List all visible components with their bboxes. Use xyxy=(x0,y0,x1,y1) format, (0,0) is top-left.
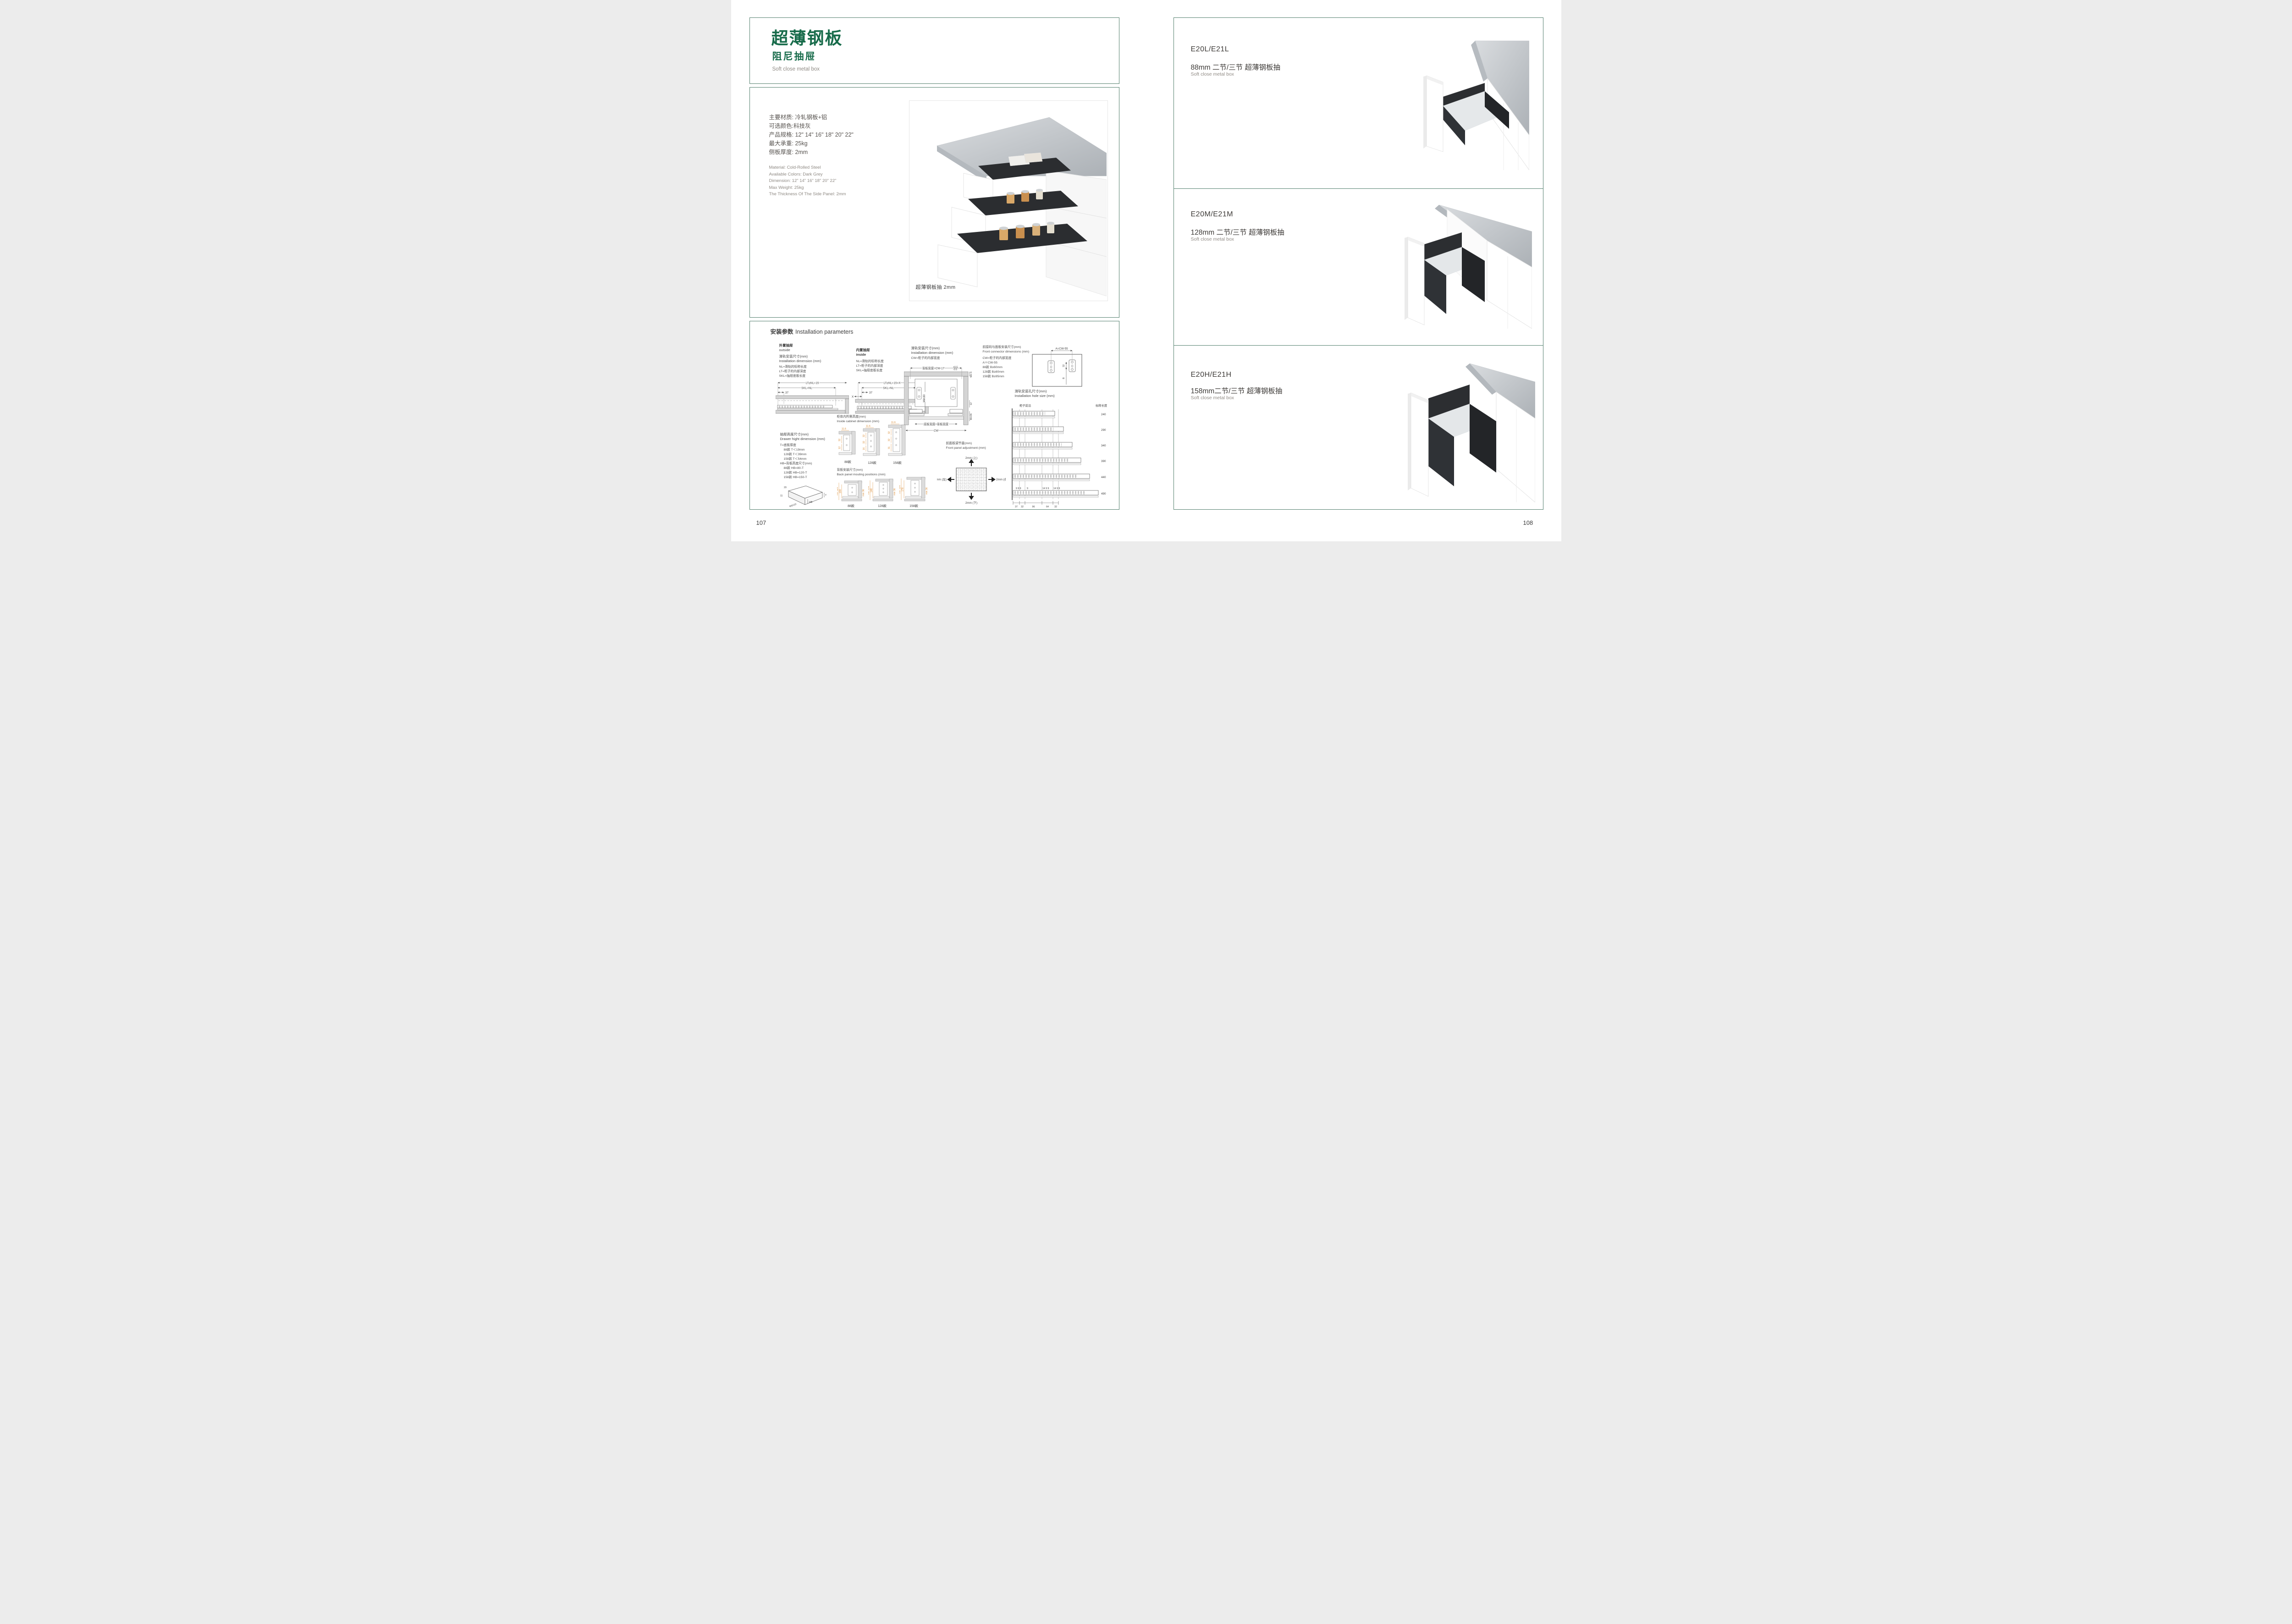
svg-text:32: 32 xyxy=(838,439,841,441)
spec-en-line: Dimension: 12" 14" 16" 18" 20" 22" xyxy=(769,178,846,185)
svg-text:SKL=NL: SKL=NL xyxy=(801,386,812,390)
svg-text:LT≥NL+15: LT≥NL+15 xyxy=(805,381,819,385)
install-header-en: Installation parameters xyxy=(795,329,853,335)
outside-diagram: LT≥NL+15 SKL=NL 37 xyxy=(776,380,849,416)
cabinet-height-158: 11.6 32 32 31 xyxy=(887,420,909,460)
svg-text:440: 440 xyxy=(1101,476,1106,479)
rail-290: 290 xyxy=(1013,427,1106,434)
product-section-128: E20M/E21M 128mm 二节/三节 超薄钢板抽 Soft close m… xyxy=(1174,188,1544,345)
product-desc-en: Soft close metal box xyxy=(1191,237,1234,242)
svg-text:LT≥NL+15+X: LT≥NL+15+X xyxy=(883,381,901,385)
spec-cn-line: 最大承重: 25kg xyxy=(769,139,854,148)
svg-text:37: 37 xyxy=(1015,506,1018,508)
svg-text:12: 12 xyxy=(838,446,841,449)
svg-text:min 36: min 36 xyxy=(926,487,928,495)
photo-caption: 超薄钢板抽 2mm xyxy=(916,283,956,291)
svg-text:11: 11 xyxy=(780,495,782,497)
product-photo: 超薄钢板抽 2mm xyxy=(909,100,1108,301)
svg-text:Min36: Min36 xyxy=(970,413,973,420)
svg-text:11.6: 11.6 xyxy=(842,428,846,430)
svg-text:9 9 9: 9 9 9 xyxy=(1016,487,1021,490)
svg-text:240: 240 xyxy=(1101,413,1106,416)
cabinet-height-158-label: 158款 xyxy=(887,461,909,465)
svg-text:背板宽度=CW-17: 背板宽度=CW-17 xyxy=(922,366,944,370)
cabinet-height-128-label: 128款 xyxy=(862,461,883,465)
page-title: 超薄钢板 xyxy=(771,24,843,49)
product-section-88: E20L/E21L 88mm 二节/三节 超薄钢板抽 Soft close me… xyxy=(1174,18,1544,188)
drawer-height-sketch: 20 11 Φ6X10 HB T xyxy=(777,484,828,508)
bottom-dims: 37 32 96 64 32 xyxy=(1013,501,1058,508)
product-section-158: E20H/E21H 158mm二节/三节 超薄钢板抽 Soft close me… xyxy=(1174,345,1544,510)
svg-text:Min 6: Min 6 xyxy=(970,372,973,378)
product-model: E20L/E21L xyxy=(1191,45,1229,54)
left-content-box: 主要材质: 冷轧钢板+铝 可选颜色:科技灰 产品规格: 12" 14" 16" … xyxy=(749,87,1119,318)
product-model: E20H/E21H xyxy=(1191,371,1232,379)
back-panel-128: min 154 148 min 36 xyxy=(868,478,897,503)
svg-text:490: 490 xyxy=(1101,492,1106,495)
product-size: 128mm 二节/三节 超薄钢板抽 xyxy=(1191,227,1284,237)
cw-block: 滑轨安装尺寸(mm) Installation dimension (mm) C… xyxy=(911,346,980,361)
svg-text:11.6: 11.6 xyxy=(866,425,871,428)
back-panel-title-cn: 背板安装尺寸(mm) xyxy=(837,468,942,473)
rail-340: 340 xyxy=(1013,442,1106,449)
specs-cn-block: 主要材质: 冷轧钢板+铝 可选颜色:科技灰 产品规格: 12" 14" 16" … xyxy=(769,113,854,157)
back-panel-158: min 184 178 min 36 xyxy=(899,476,929,503)
adjust-title-en: Front panel adjustment (mm) xyxy=(946,446,1024,451)
product-render-128 xyxy=(1370,205,1532,329)
svg-text:X: X xyxy=(852,396,854,399)
cw-title-en: Installation dimension (mm) xyxy=(911,351,980,355)
svg-text:32: 32 xyxy=(863,441,865,444)
svg-text:2mm (右): 2mm (右) xyxy=(996,477,1006,481)
page-subtitle-en: Soft close metal box xyxy=(772,66,820,72)
svg-text:31: 31 xyxy=(888,446,891,449)
inside-label-en: inside xyxy=(856,352,916,357)
product-size: 158mm二节/三节 超薄钢板抽 xyxy=(1191,385,1283,396)
outside-dim-title-cn: 滑轨安装尺寸(mm) xyxy=(779,354,848,359)
right-products-box: E20L/E21L 88mm 二节/三节 超薄钢板抽 Soft close me… xyxy=(1174,17,1543,510)
adjust-diagram: 2mm (上) 2mm (下) 2mm (左) 2mm (右) xyxy=(937,454,1006,506)
outside-label-cn: 外置抽屉 xyxy=(779,343,848,348)
adjust-title-cn: 前面板调节量(mm) xyxy=(946,441,1024,446)
svg-text:min 184: min 184 xyxy=(899,485,901,494)
product-desc-en: Soft close metal box xyxy=(1191,72,1234,77)
hole-title-en: Installation hole size (mm) xyxy=(1015,394,1116,398)
svg-text:178: 178 xyxy=(901,488,904,492)
svg-text:-0.5: -0.5 xyxy=(953,369,957,371)
outside-dim-title-en: Installation dimension (mm) xyxy=(779,359,848,363)
svg-text:B: B xyxy=(1063,377,1065,379)
svg-text:min 154: min 154 xyxy=(868,486,870,495)
svg-text:柜子前沿: 柜子前沿 xyxy=(1019,403,1031,407)
svg-text:32: 32 xyxy=(888,431,891,434)
svg-text:32: 32 xyxy=(1021,506,1024,508)
cabinet-height-88-label: 88款 xyxy=(838,460,858,464)
cabinet-height-title-en: Inside cabinet dimension (mm) xyxy=(837,419,933,424)
back-panel-158-label: 158款 xyxy=(899,504,929,508)
cw-title-cn: 滑轨安装尺寸(mm) xyxy=(911,346,980,351)
spec-cn-line: 主要材质: 冷轧钢板+铝 xyxy=(769,113,854,122)
spec-cn-line: 可选颜色:科技灰 xyxy=(769,122,854,131)
svg-text:20: 20 xyxy=(784,486,787,489)
svg-text:37: 37 xyxy=(785,391,789,394)
hole-title-block: 滑轨安装孔尺寸(mm) Installation hole size (mm) xyxy=(1015,389,1116,398)
install-header-cn: 安装参数 xyxy=(771,329,793,335)
outside-legend-nl: NL=滑轨的标称长度 xyxy=(779,365,848,369)
svg-text:Φ6X10: Φ6X10 xyxy=(789,503,797,508)
connector-diagram: A=CW-55 32 B xyxy=(1030,347,1085,389)
svg-text:A=CW-55: A=CW-55 xyxy=(1055,347,1068,351)
product-model: E20M/E21M xyxy=(1191,210,1234,219)
spec-en-line: The Thickness Of The Side Panel: 2mm xyxy=(769,191,846,198)
svg-text:HB: HB xyxy=(809,501,813,504)
install-header: 安装参数 Installation parameters xyxy=(771,327,854,336)
page-number-right: 108 xyxy=(1523,519,1533,526)
rail-240: 240 xyxy=(1013,411,1106,418)
svg-text:2mm (下): 2mm (下) xyxy=(965,501,977,505)
product-desc-en: Soft close metal box xyxy=(1191,395,1234,401)
svg-text:min 36: min 36 xyxy=(862,489,865,496)
svg-text:Min30: Min30 xyxy=(923,394,926,402)
svg-text:min 36: min 36 xyxy=(893,488,896,495)
kitchen-render-illustration xyxy=(909,101,1107,300)
page-subtitle: 阻尼抽屉 xyxy=(772,49,816,63)
outside-legend-lt: LT=柜子的内部深度 xyxy=(779,369,848,374)
spec-en-line: Max Weight: 25kg xyxy=(769,185,846,192)
cabinet-height-title-cn: 柜体内所需高度(mm) xyxy=(837,415,933,419)
back-panel-88-label: 88款 xyxy=(837,504,865,508)
spec-en-line: Available Colors: Dark Grey xyxy=(769,171,846,178)
svg-text:CW: CW xyxy=(933,429,938,432)
page-number-left: 107 xyxy=(756,519,766,526)
svg-text:108: 108 xyxy=(839,490,842,494)
cabinet-height-128: 11.6 32 32 16 xyxy=(862,424,883,460)
svg-text:64: 64 xyxy=(1046,506,1049,508)
svg-text:37: 37 xyxy=(869,391,873,394)
svg-text:14 9 9: 14 9 9 xyxy=(1053,487,1060,490)
back-panel-title: 背板安装尺寸(mm) Back panel mouting positions … xyxy=(837,468,942,477)
svg-text:12: 12 xyxy=(970,402,973,405)
cabinet-height-title: 柜体内所需高度(mm) Inside cabinet dimension (mm… xyxy=(837,415,933,424)
svg-text:290: 290 xyxy=(1101,429,1106,432)
left-title-box: 超薄钢板 阻尼抽屉 Soft close metal box xyxy=(749,17,1119,84)
rail-490: 9 9 9 9 14 9 9 14 9 9 490 xyxy=(1013,487,1106,497)
svg-text:32: 32 xyxy=(1063,364,1065,367)
cabinet-height-88: 11.6 32 12 xyxy=(838,427,858,459)
svg-text:标称长度: 标称长度 xyxy=(1096,403,1107,407)
inside-label-cn: 内置抽屉 xyxy=(856,348,916,352)
svg-text:32: 32 xyxy=(888,439,891,441)
back-panel-88: min 114 108 min 36 xyxy=(837,480,865,503)
spec-cn-line: 产品规格: 12" 14" 16" 18" 20" 22" xyxy=(769,131,854,139)
adjust-title: 前面板调节量(mm) Front panel adjustment (mm) xyxy=(946,441,1024,451)
svg-text:16: 16 xyxy=(863,447,865,450)
outside-legend-skl: SKL=抽屉底板长度 xyxy=(779,374,848,379)
outside-block: 外置抽屉 outside 滑轨安装尺寸(mm) Installation dim… xyxy=(779,343,848,379)
svg-text:390: 390 xyxy=(1101,460,1106,463)
specs-en-block: Material: Cold-Rolled Steel Available Co… xyxy=(769,165,846,198)
svg-text:11.6: 11.6 xyxy=(891,421,896,424)
svg-text:32: 32 xyxy=(863,435,865,437)
svg-text:340: 340 xyxy=(1101,444,1106,447)
svg-text:14 9 9: 14 9 9 xyxy=(1042,487,1049,490)
svg-text:T: T xyxy=(825,494,827,497)
svg-text:32: 32 xyxy=(1054,506,1057,508)
spec-cn-line: 侧板厚度: 2mm xyxy=(769,148,854,157)
rail-440: 440 xyxy=(1013,474,1106,481)
rail-390: 390 xyxy=(1013,458,1106,465)
hole-title-cn: 滑轨安装孔尺寸(mm) xyxy=(1015,389,1116,394)
svg-text:148: 148 xyxy=(870,489,873,493)
outside-label-en: outside xyxy=(779,348,848,352)
product-render-88 xyxy=(1373,39,1529,170)
back-panel-128-label: 128款 xyxy=(868,504,897,508)
product-render-158 xyxy=(1373,363,1535,502)
inside-legend-nl: NL=滑轨的标称长度 xyxy=(856,359,916,364)
install-params-box: 安装参数 Installation parameters 外置抽屉 outsid… xyxy=(749,321,1119,510)
svg-text:96: 96 xyxy=(1032,506,1035,508)
cw-legend: CW=柜子的内部宽度 xyxy=(911,356,980,361)
spec-en-line: Material: Cold-Rolled Steel xyxy=(769,165,846,171)
svg-text:min 114: min 114 xyxy=(837,487,839,495)
product-size: 88mm 二节/三节 超薄钢板抽 xyxy=(1191,62,1280,72)
svg-text:9: 9 xyxy=(1027,487,1028,490)
hole-size-chart: 柜子前沿 标称长度 240 290 340 xyxy=(1006,400,1114,509)
svg-text:2mm (左): 2mm (左) xyxy=(937,477,947,481)
svg-text:SKL=NL: SKL=NL xyxy=(883,386,894,390)
catalog-spread: 超薄钢板 阻尼抽屉 Soft close metal box 主要材质: 冷轧钢… xyxy=(731,0,1561,541)
